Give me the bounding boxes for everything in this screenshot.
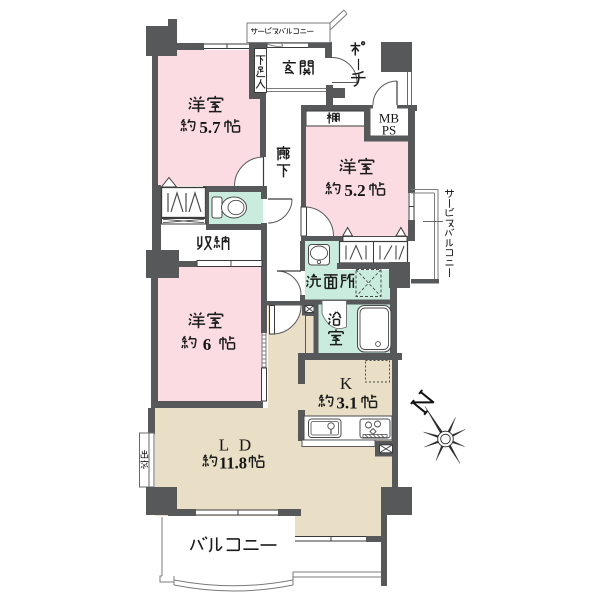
svg-text:3.1: 3.1 [336,393,357,412]
svg-text:K: K [340,374,353,393]
svg-text:D: D [239,436,251,455]
svg-text:11.8: 11.8 [219,453,247,472]
svg-text:6: 6 [203,335,212,354]
svg-text:5.2: 5.2 [344,181,365,200]
svg-text:PS: PS [382,123,396,138]
svg-text:5.7: 5.7 [199,118,221,137]
svg-text:L: L [219,436,229,455]
